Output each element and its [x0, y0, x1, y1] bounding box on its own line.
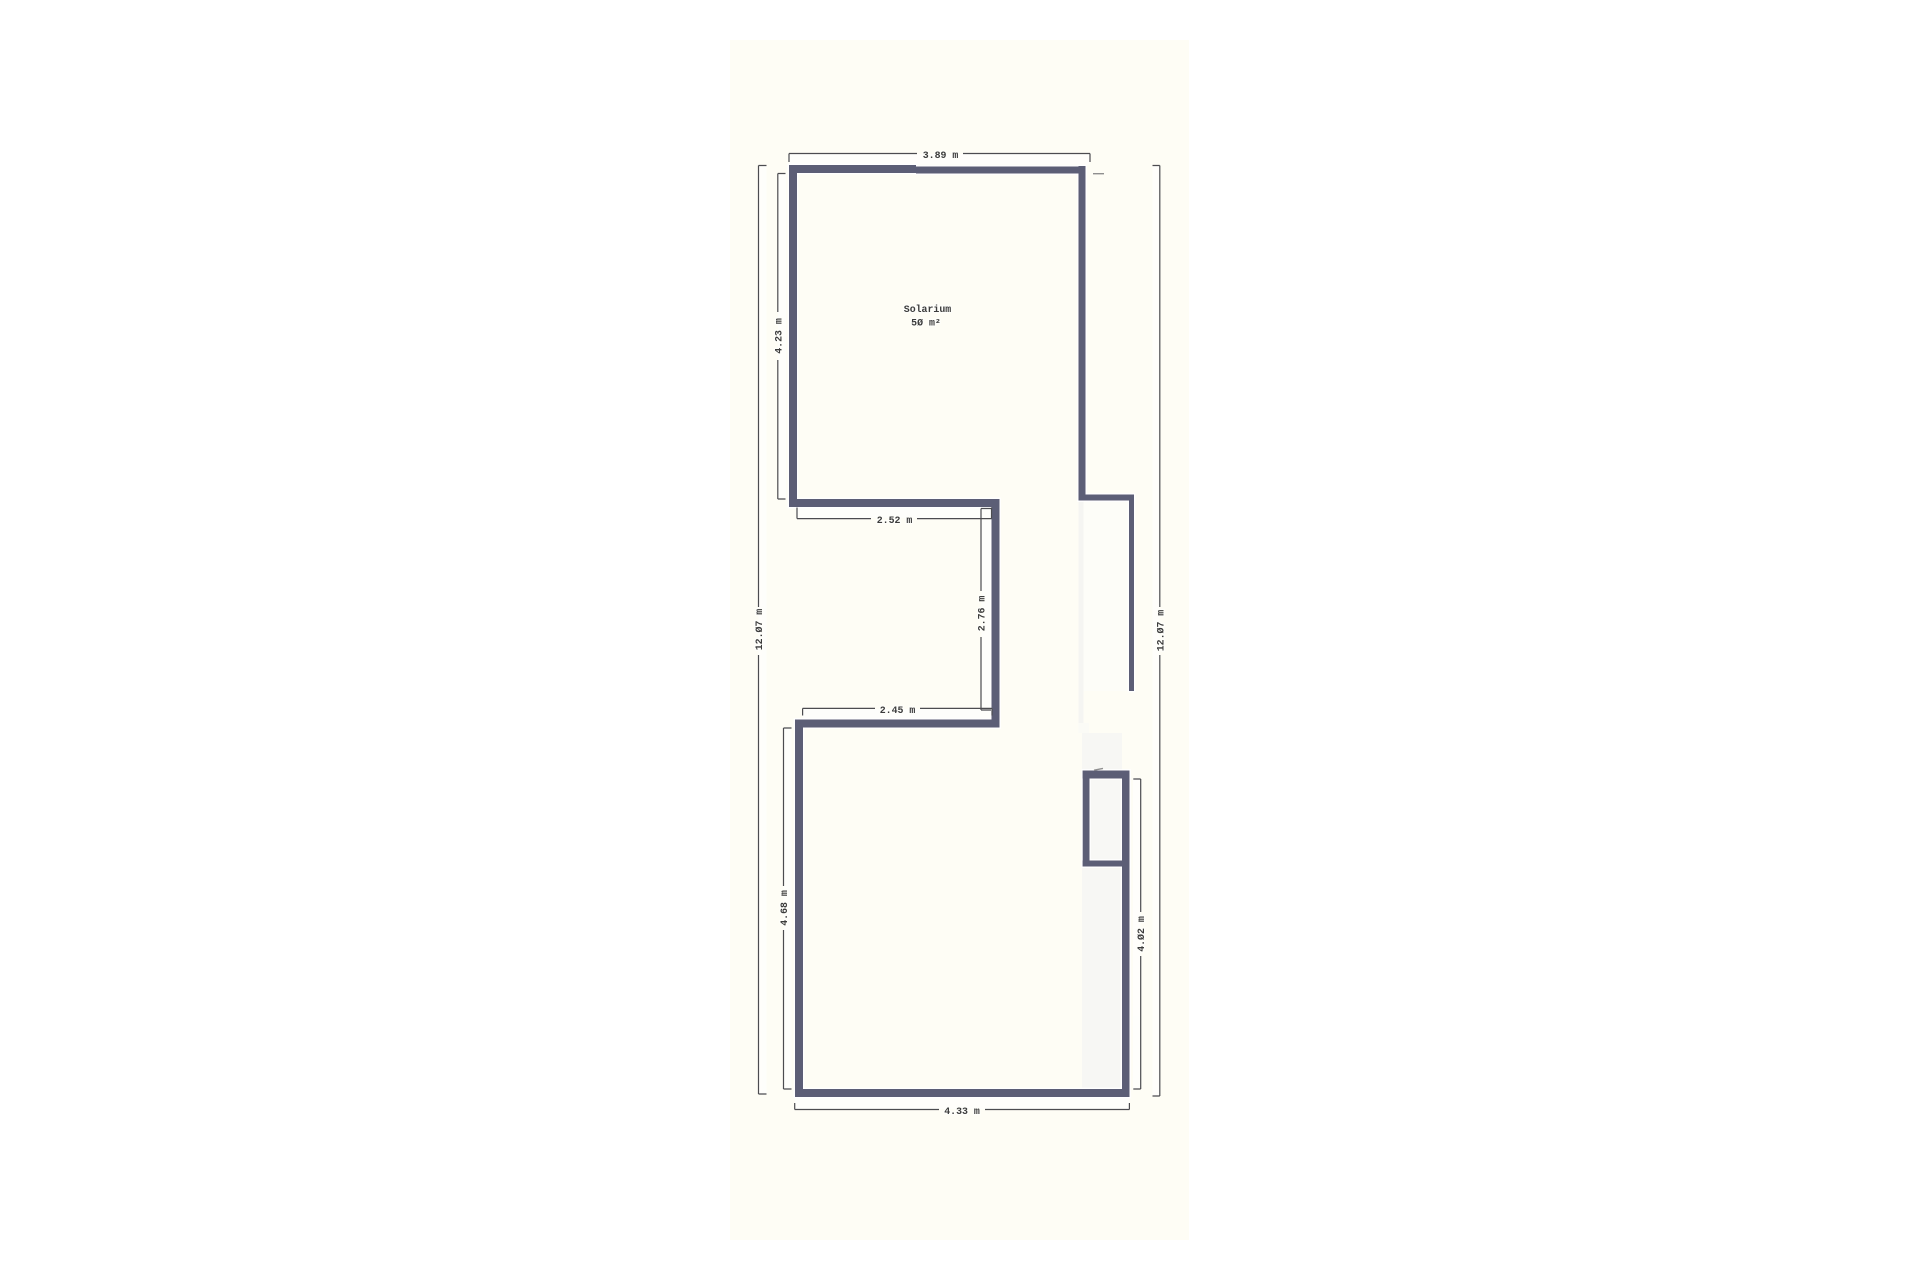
- svg-text:4.33 m: 4.33 m: [944, 1106, 980, 1117]
- svg-text:4.68 m: 4.68 m: [779, 890, 790, 926]
- svg-text:5Ø m²: 5Ø m²: [911, 318, 941, 329]
- svg-text:12.Ø7 m: 12.Ø7 m: [1155, 610, 1166, 652]
- svg-text:3.89 m: 3.89 m: [923, 150, 959, 161]
- svg-text:4.Ø2 m: 4.Ø2 m: [1136, 916, 1147, 952]
- svg-text:4.23 m: 4.23 m: [773, 318, 784, 354]
- svg-text:2.52 m: 2.52 m: [877, 515, 913, 526]
- svg-text:Solarium: Solarium: [904, 304, 951, 315]
- svg-text:2.76 m: 2.76 m: [977, 596, 988, 632]
- svg-text:2.45 m: 2.45 m: [880, 705, 916, 716]
- svg-text:12.Ø7 m: 12.Ø7 m: [754, 609, 765, 651]
